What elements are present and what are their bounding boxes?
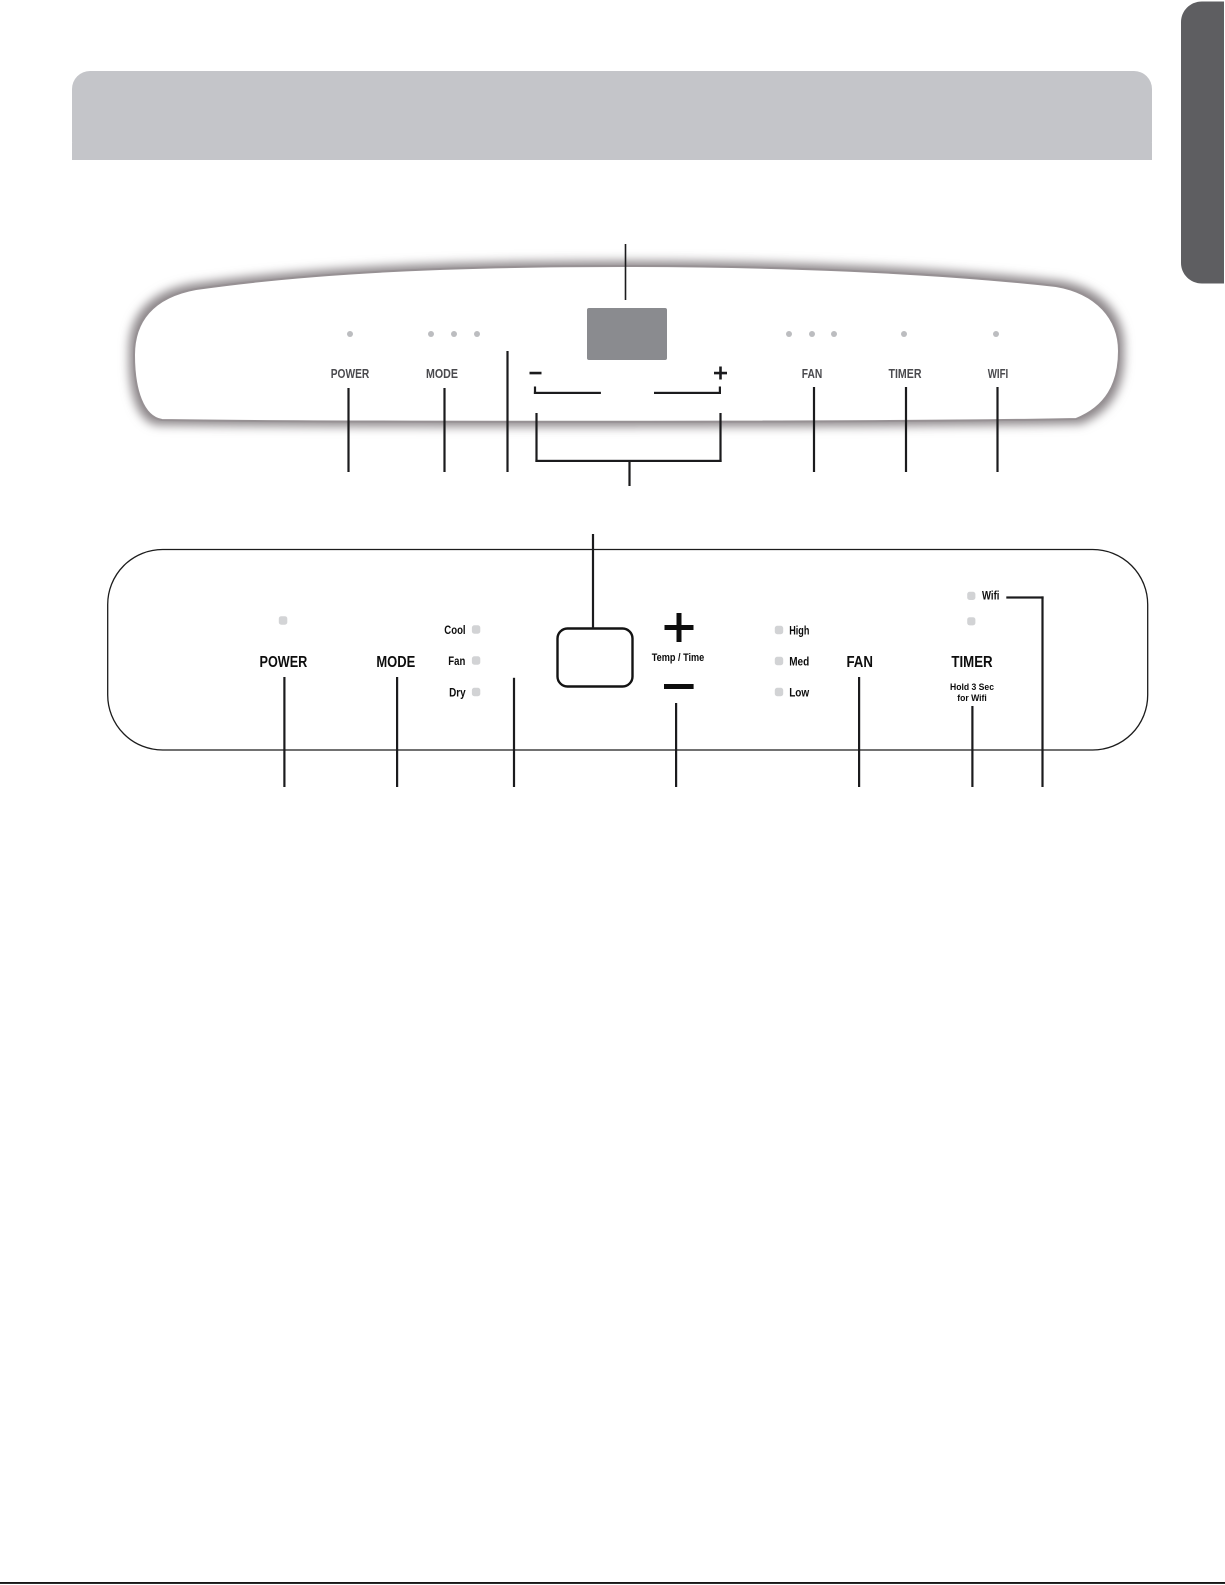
svg-text:MODE: MODE [426, 366, 458, 381]
svg-text:FAN: FAN [802, 366, 823, 381]
svg-text:Fan: Fan [448, 654, 465, 668]
svg-text:TIMER: TIMER [951, 654, 993, 671]
svg-text:Med: Med [789, 655, 809, 669]
svg-text:TIMER: TIMER [889, 366, 922, 381]
svg-text:FAN: FAN [846, 654, 873, 671]
svg-text:POWER: POWER [331, 366, 370, 381]
svg-text:Hold 3 Sec: Hold 3 Sec [950, 682, 994, 693]
svg-text:POWER: POWER [260, 654, 308, 671]
svg-text:for Wifi: for Wifi [957, 693, 987, 704]
svg-text:Temp / Time: Temp / Time [652, 652, 705, 664]
svg-text:Cool: Cool [444, 623, 465, 637]
svg-text:WIFI: WIFI [988, 366, 1009, 381]
svg-text:High: High [789, 624, 809, 638]
svg-text:Low: Low [789, 686, 810, 700]
svg-text:Dry: Dry [449, 686, 466, 700]
svg-text:MODE: MODE [376, 654, 415, 671]
svg-text:Wifi: Wifi [982, 589, 999, 603]
